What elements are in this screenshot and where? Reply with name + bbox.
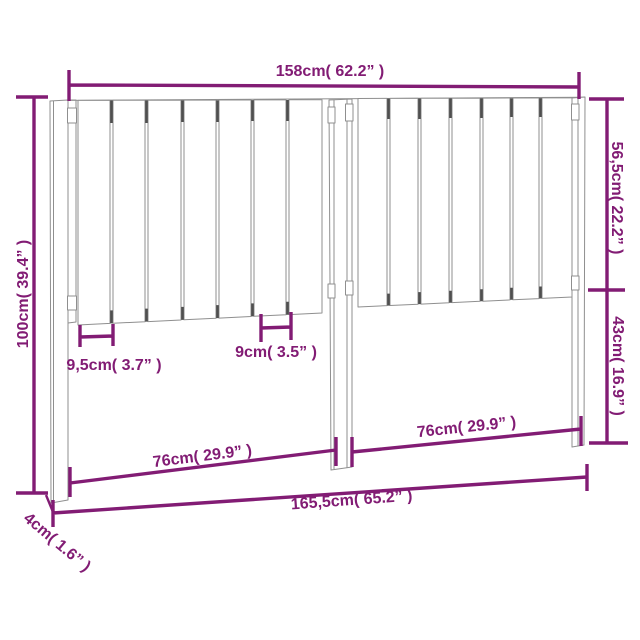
dim-slat-width: 9cm( 3.5” ) — [235, 312, 317, 361]
dim-line — [261, 312, 291, 342]
bracket — [572, 276, 580, 290]
slat — [219, 100, 251, 318]
dim-first-slat-width: 9,5cm( 3.7” ) — [66, 324, 161, 374]
headboard-diagram-svg: 158cm( 62.2” ) 100cm( 39.4” ) 56,5cm( 22… — [0, 0, 640, 640]
left-height-label: 100cm( 39.4” ) — [15, 240, 32, 349]
slat — [542, 98, 572, 299]
slat — [113, 100, 145, 323]
first-slat-width-label: 9,5cm( 3.7” ) — [66, 357, 161, 374]
right-slat-panel — [358, 98, 572, 307]
dimension-diagram: 158cm( 62.2” ) 100cm( 39.4” ) 56,5cm( 22… — [0, 0, 640, 640]
slat — [358, 98, 387, 307]
slat — [254, 100, 286, 316]
dim-right-opening: 76cm( 29.9” ) — [352, 414, 581, 467]
left-slat-panel — [78, 100, 322, 325]
dim-leg-thickness: 4cm( 1.6” ) — [20, 495, 94, 575]
slat — [390, 98, 418, 305]
dim-right-upper-height: 56,5cm( 22.2” ) — [588, 99, 625, 290]
dim-line — [70, 437, 336, 497]
dim-left-height: 100cm( 39.4” ) — [15, 97, 48, 493]
bracket — [572, 104, 580, 120]
dim-line — [80, 324, 113, 347]
dim-total-width: 165,5cm( 65.2” ) — [53, 464, 587, 527]
dim-left-opening: 76cm( 29.9” ) — [70, 437, 336, 497]
slat — [289, 100, 322, 315]
top-width-label: 158cm( 62.2” ) — [276, 63, 385, 80]
dim-top-width: 158cm( 62.2” ) — [69, 63, 579, 101]
bracket — [346, 104, 354, 121]
bracket — [328, 107, 335, 123]
left-leg-side-face — [68, 100, 76, 323]
slat — [452, 98, 480, 303]
right-upper-height-label: 56,5cm( 22.2” ) — [608, 142, 625, 255]
slat-width-label: 9cm( 3.5” ) — [235, 344, 317, 361]
bracket — [328, 284, 335, 298]
slat — [78, 100, 110, 325]
slat — [184, 100, 216, 320]
dim-right-lower-height: 43cm( 16.9” ) — [589, 290, 628, 443]
slat — [148, 100, 181, 322]
leg-thickness-label: 4cm( 1.6” ) — [20, 510, 94, 576]
bracket — [68, 108, 77, 123]
left-leg — [50, 100, 68, 503]
right-lower-height-label: 43cm( 16.9” ) — [609, 316, 626, 416]
total-width-label: 165,5cm( 65.2” ) — [290, 488, 413, 514]
slat — [513, 98, 539, 300]
bracket — [346, 281, 354, 295]
headboard-drawing — [50, 97, 585, 503]
slat — [421, 98, 449, 304]
slat — [483, 98, 510, 301]
bracket — [68, 296, 77, 310]
